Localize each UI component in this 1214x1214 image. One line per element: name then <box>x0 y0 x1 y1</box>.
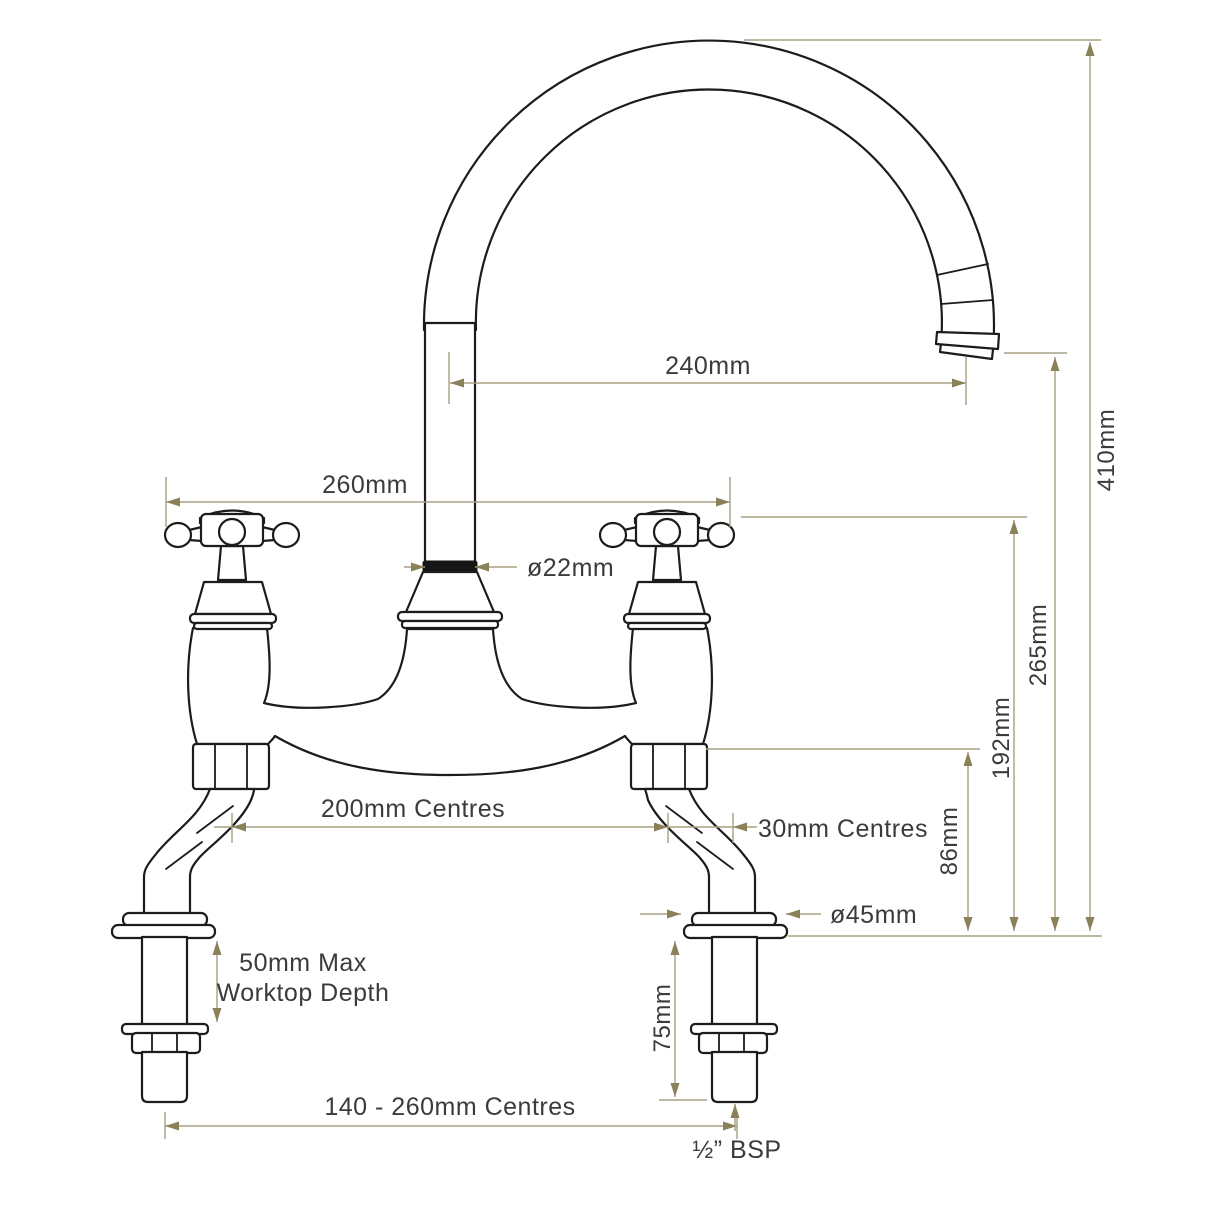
right-shank <box>712 937 757 1026</box>
dim-worktop-depth-label-line2: Worktop Depth <box>217 979 390 1007</box>
left-tail-pipe <box>142 1052 187 1102</box>
left-crosshead-handle <box>165 511 299 548</box>
dim-worktop-depth-label-line1: 50mm Max <box>239 949 367 977</box>
dim-spout-diameter-label: ø22mm <box>527 554 614 582</box>
dim-thread-size-label: ½” BSP <box>692 1136 781 1164</box>
left-bonnet <box>190 582 276 629</box>
right-handle-stem <box>653 546 681 580</box>
dim-overall-width-label: 260mm <box>322 471 408 499</box>
spout-base-flare <box>406 572 494 612</box>
dim-spout-outlet-height-label: 265mm <box>1025 604 1052 687</box>
drawing-page: 240mm 260mm ø22mm 200mm Centres 30mm Cen… <box>0 0 1214 1214</box>
dim-flange-diameter-label: ø45mm <box>830 901 917 929</box>
right-hex-nut <box>631 744 707 789</box>
technical-drawing: 240mm 260mm ø22mm 200mm Centres 30mm Cen… <box>0 0 1214 1214</box>
spout-base-rim2 <box>402 621 498 628</box>
dim-offset-centres-label: 30mm Centres <box>758 815 928 843</box>
left-backnut <box>132 1033 200 1053</box>
left-handle-stem <box>218 546 246 580</box>
right-crosshead-handle <box>600 511 734 548</box>
dim-handle-top-height-label: 192mm <box>988 697 1015 780</box>
dim-overall-height-label: 410mm <box>1093 409 1120 492</box>
dim-shank-length-label: 75mm <box>649 984 676 1053</box>
right-backnut <box>699 1033 767 1053</box>
right-tail-pipe <box>712 1052 757 1102</box>
spout-arc <box>424 41 994 359</box>
right-bonnet <box>624 582 710 629</box>
dim-tap-hole-centres-label: 200mm Centres <box>321 795 505 823</box>
spout-seal-band <box>423 561 477 572</box>
spout-column <box>425 323 475 563</box>
dim-spout-reach-label: 240mm <box>665 352 751 380</box>
left-shank <box>142 937 187 1026</box>
dim-inlet-centres-label: 140 - 260mm Centres <box>324 1093 575 1121</box>
dim-inlet-body-height-label: 86mm <box>936 807 963 876</box>
spout-base-rim <box>398 612 502 621</box>
left-hex-nut <box>193 744 269 789</box>
